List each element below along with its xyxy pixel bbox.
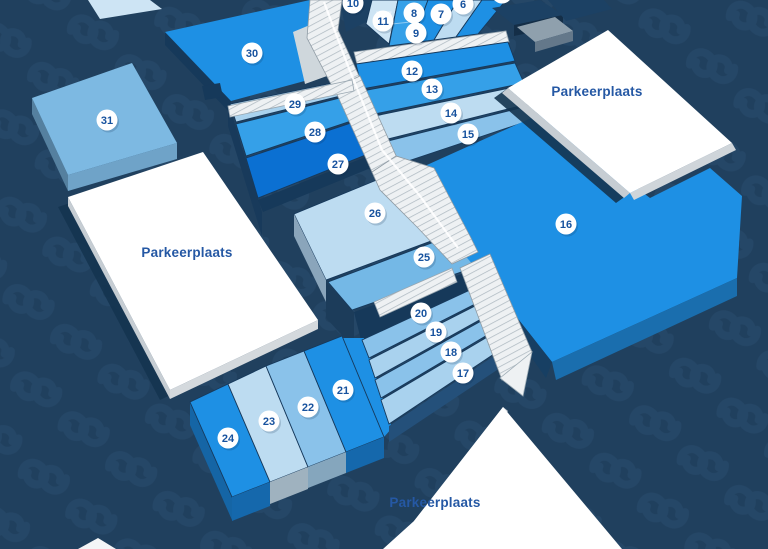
hall-30-notch [202, 83, 223, 100]
parking-left-label: Parkeerplaats [141, 245, 232, 260]
map-canvas: Parkeerplaats Parkeerplaats Parkeerplaat… [0, 0, 768, 549]
parking-bottom-label: Parkeerplaats [389, 495, 480, 510]
parking-right-label: Parkeerplaats [551, 84, 642, 99]
venue-map: Parkeerplaats Parkeerplaats Parkeerplaat… [0, 0, 768, 549]
